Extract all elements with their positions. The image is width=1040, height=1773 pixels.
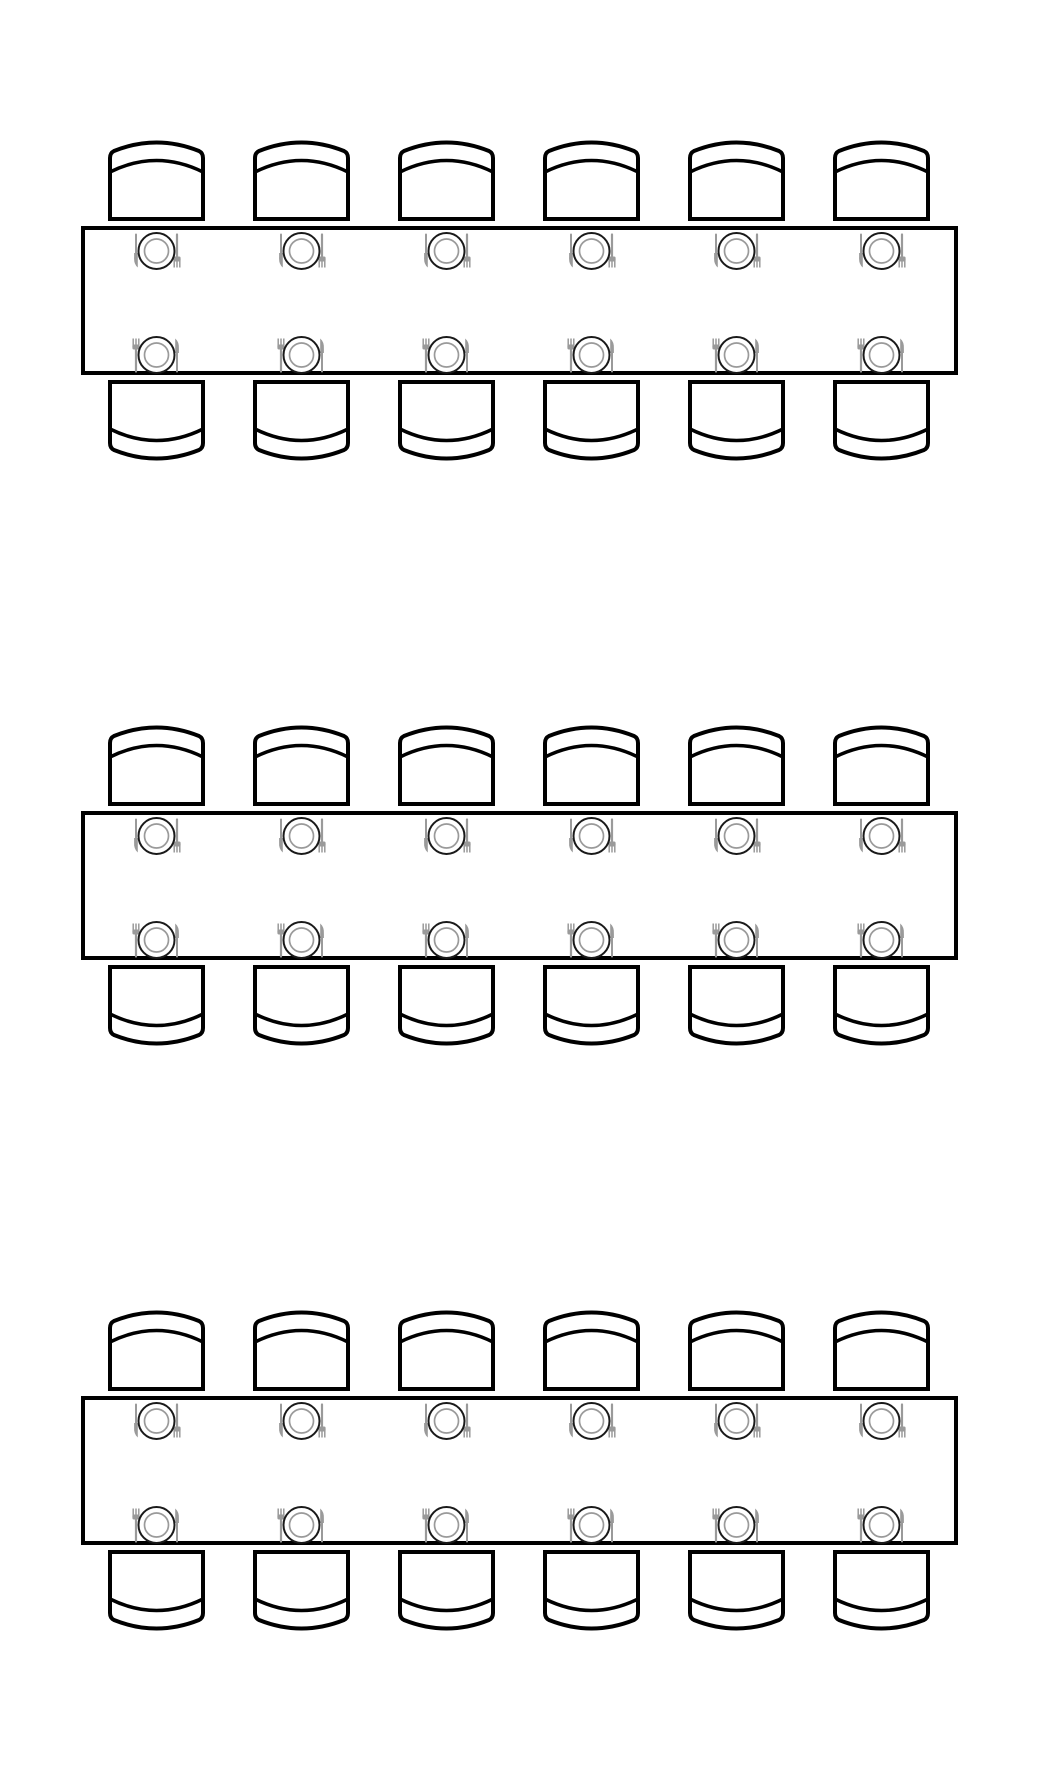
chair-outline xyxy=(690,382,783,459)
table-2-chair-bottom-3[interactable] xyxy=(400,967,493,1044)
table-2-chair-top-4[interactable] xyxy=(545,728,638,805)
table-2-chair-bottom-6[interactable] xyxy=(835,967,928,1044)
chair-outline xyxy=(255,728,348,805)
chair-outline xyxy=(400,1552,493,1629)
chair-outline xyxy=(110,1313,203,1390)
chair-outline xyxy=(690,1552,783,1629)
table-2-chair-bottom-5[interactable] xyxy=(690,967,783,1044)
table-1-chair-bottom-2[interactable] xyxy=(255,382,348,459)
chair-outline xyxy=(690,728,783,805)
table-2-chair-bottom-1[interactable] xyxy=(110,967,203,1044)
chair-outline xyxy=(835,967,928,1044)
seating-plan-canvas xyxy=(0,0,1040,1773)
chair-outline xyxy=(835,143,928,220)
table-1-chair-bottom-4[interactable] xyxy=(545,382,638,459)
chair-outline xyxy=(545,728,638,805)
chair-outline xyxy=(110,967,203,1044)
table-2-chair-top-5[interactable] xyxy=(690,728,783,805)
chair-outline xyxy=(690,967,783,1044)
chair-outline xyxy=(400,1313,493,1390)
chair-outline xyxy=(400,382,493,459)
chair-outline xyxy=(255,382,348,459)
table-3-chair-bottom-2[interactable] xyxy=(255,1552,348,1629)
chair-outline xyxy=(835,728,928,805)
chair-outline xyxy=(545,143,638,220)
table-3-chair-bottom-5[interactable] xyxy=(690,1552,783,1629)
table-2-chair-top-6[interactable] xyxy=(835,728,928,805)
chair-outline xyxy=(110,143,203,220)
table-1-chair-top-1[interactable] xyxy=(110,143,203,220)
table-3-chair-bottom-4[interactable] xyxy=(545,1552,638,1629)
table-2[interactable] xyxy=(83,813,956,958)
table-1-chair-bottom-6[interactable] xyxy=(835,382,928,459)
table-3-chair-bottom-6[interactable] xyxy=(835,1552,928,1629)
chair-outline xyxy=(110,728,203,805)
table-3-chair-top-6[interactable] xyxy=(835,1313,928,1390)
table-1-chair-top-6[interactable] xyxy=(835,143,928,220)
table-3-chair-top-4[interactable] xyxy=(545,1313,638,1390)
chair-outline xyxy=(545,1313,638,1390)
chair-outline xyxy=(110,382,203,459)
table-1-chair-bottom-1[interactable] xyxy=(110,382,203,459)
table-1-chair-top-5[interactable] xyxy=(690,143,783,220)
chair-outline xyxy=(255,1552,348,1629)
chair-outline xyxy=(690,143,783,220)
table-3[interactable] xyxy=(83,1398,956,1543)
chair-outline xyxy=(255,143,348,220)
table-1[interactable] xyxy=(83,228,956,373)
table-2-chair-top-1[interactable] xyxy=(110,728,203,805)
chair-outline xyxy=(400,967,493,1044)
chair-outline xyxy=(835,1313,928,1390)
chair-outline xyxy=(545,382,638,459)
seating-chart xyxy=(0,0,1040,1773)
table-1-chair-top-3[interactable] xyxy=(400,143,493,220)
chair-outline xyxy=(400,143,493,220)
chair-outline xyxy=(690,1313,783,1390)
table-1-chair-top-2[interactable] xyxy=(255,143,348,220)
table-1-chair-bottom-3[interactable] xyxy=(400,382,493,459)
table-1-group xyxy=(83,143,956,459)
chair-outline xyxy=(545,1552,638,1629)
table-2-group xyxy=(83,728,956,1044)
table-3-chair-top-3[interactable] xyxy=(400,1313,493,1390)
chair-outline xyxy=(400,728,493,805)
chair-outline xyxy=(110,1552,203,1629)
table-1-chair-top-4[interactable] xyxy=(545,143,638,220)
chair-outline xyxy=(835,1552,928,1629)
chair-outline xyxy=(545,967,638,1044)
table-2-chair-bottom-4[interactable] xyxy=(545,967,638,1044)
table-3-chair-top-1[interactable] xyxy=(110,1313,203,1390)
chair-outline xyxy=(835,382,928,459)
table-3-chair-top-5[interactable] xyxy=(690,1313,783,1390)
chair-outline xyxy=(255,1313,348,1390)
table-3-chair-bottom-1[interactable] xyxy=(110,1552,203,1629)
chair-outline xyxy=(255,967,348,1044)
table-3-group xyxy=(83,1313,956,1629)
table-1-chair-bottom-5[interactable] xyxy=(690,382,783,459)
table-3-chair-bottom-3[interactable] xyxy=(400,1552,493,1629)
table-3-chair-top-2[interactable] xyxy=(255,1313,348,1390)
table-2-chair-top-2[interactable] xyxy=(255,728,348,805)
table-2-chair-top-3[interactable] xyxy=(400,728,493,805)
table-2-chair-bottom-2[interactable] xyxy=(255,967,348,1044)
